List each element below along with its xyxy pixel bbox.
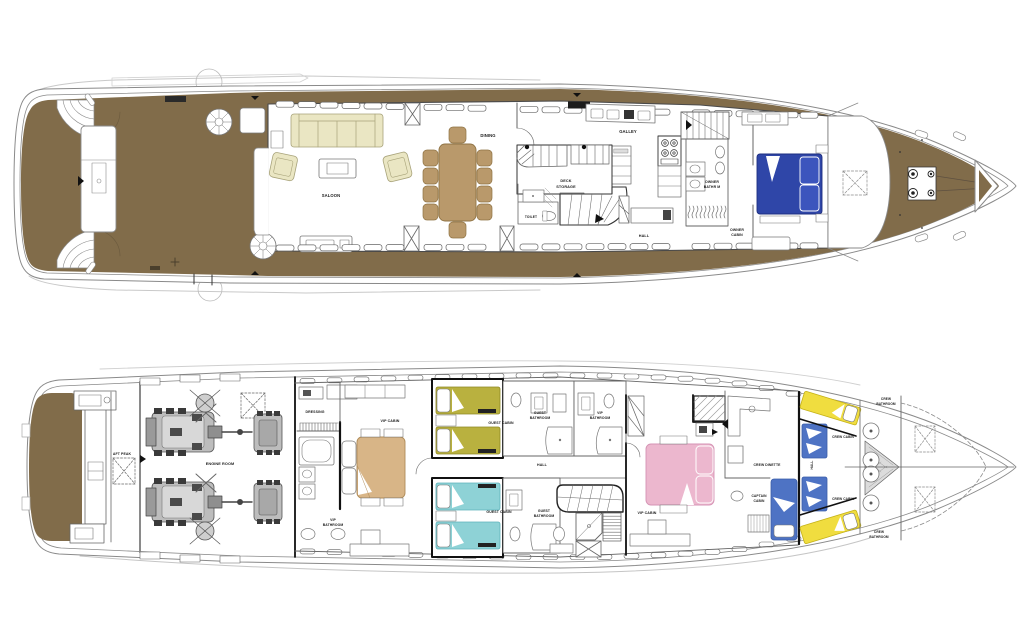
svg-text:CABIN: CABIN: [731, 233, 743, 237]
svg-text:OWNER: OWNER: [705, 180, 719, 184]
svg-text:DINING: DINING: [480, 133, 495, 138]
svg-text:OWNER: OWNER: [730, 228, 744, 232]
svg-text:TOILET: TOILET: [525, 215, 537, 219]
svg-text:GUEST CABIN: GUEST CABIN: [486, 510, 512, 514]
svg-text:GUEST: GUEST: [534, 411, 547, 415]
svg-text:GUEST CABIN: GUEST CABIN: [488, 421, 514, 425]
svg-text:ENGINE ROOM: ENGINE ROOM: [206, 462, 235, 466]
svg-text:CREW CABIN: CREW CABIN: [832, 435, 854, 439]
svg-text:GALLEY: GALLEY: [619, 129, 637, 134]
svg-text:CREW: CREW: [874, 530, 884, 534]
svg-text:BATHROOM: BATHROOM: [530, 416, 551, 420]
svg-text:HALL: HALL: [537, 463, 548, 467]
svg-text:BATHROOM: BATHROOM: [876, 402, 896, 406]
svg-text:CREW DINETTE: CREW DINETTE: [753, 463, 781, 467]
svg-text:VIP CABIN: VIP CABIN: [380, 419, 399, 423]
svg-text:VIP: VIP: [597, 411, 603, 415]
svg-text:HALL: HALL: [810, 461, 814, 470]
svg-text:STORAGE: STORAGE: [556, 185, 576, 189]
svg-text:BATHROOM: BATHROOM: [534, 514, 555, 518]
svg-text:CAPTAIN: CAPTAIN: [751, 494, 767, 498]
svg-text:DECK: DECK: [560, 179, 571, 183]
svg-text:SALOON: SALOON: [322, 193, 341, 198]
svg-text:GUEST: GUEST: [538, 509, 551, 513]
svg-text:VIP: VIP: [330, 518, 336, 522]
svg-text:CABIN: CABIN: [754, 499, 765, 503]
svg-text:DRESSING: DRESSING: [305, 410, 324, 414]
svg-text:BATHROOM: BATHROOM: [869, 535, 889, 539]
svg-text:VIP CABIN: VIP CABIN: [637, 511, 656, 515]
svg-text:BATHR M: BATHR M: [704, 185, 721, 189]
svg-text:CREW: CREW: [881, 397, 891, 401]
svg-text:BATHROOM: BATHROOM: [323, 523, 344, 527]
svg-text:BATHROOM: BATHROOM: [590, 416, 611, 420]
svg-text:HALL: HALL: [639, 234, 650, 238]
svg-text:AFT PEAK: AFT PEAK: [113, 452, 132, 456]
